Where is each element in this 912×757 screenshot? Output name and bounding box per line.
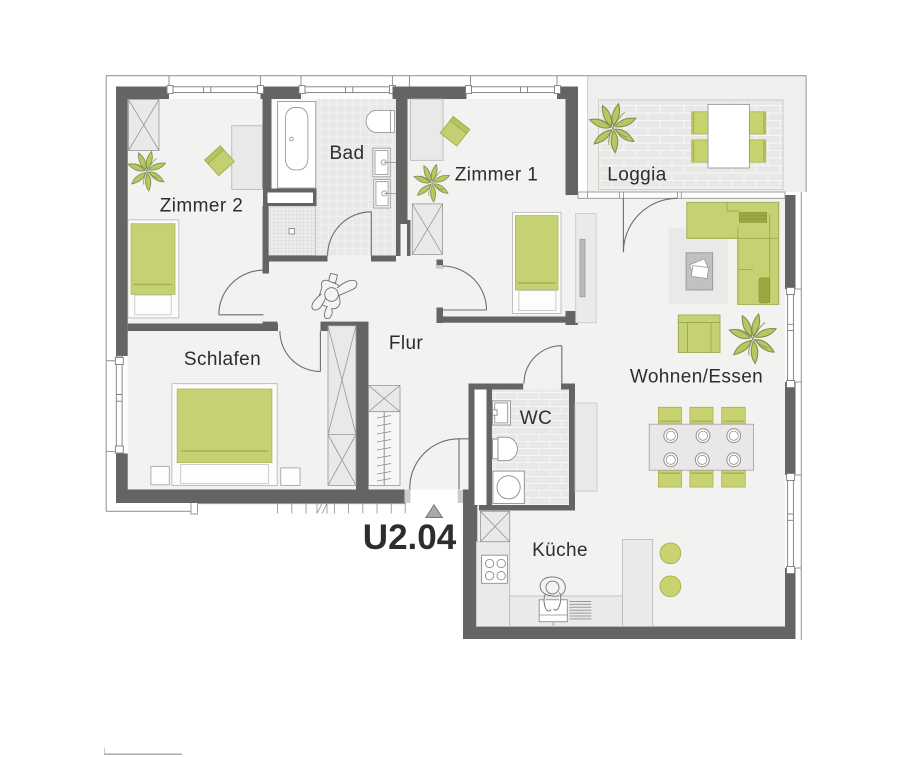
svg-text:Zimmer 1: Zimmer 1: [455, 165, 538, 186]
svg-text:Bad: Bad: [329, 143, 364, 164]
svg-text:Schlafen: Schlafen: [184, 349, 261, 370]
svg-text:WC: WC: [520, 408, 552, 429]
svg-text:Wohnen/Essen: Wohnen/Essen: [630, 367, 763, 388]
svg-text:Flur: Flur: [389, 333, 424, 354]
svg-text:Zimmer 2: Zimmer 2: [160, 196, 243, 217]
svg-text:Loggia: Loggia: [607, 165, 666, 186]
svg-text:U2.04: U2.04: [363, 518, 457, 557]
svg-text:Küche: Küche: [532, 540, 588, 561]
